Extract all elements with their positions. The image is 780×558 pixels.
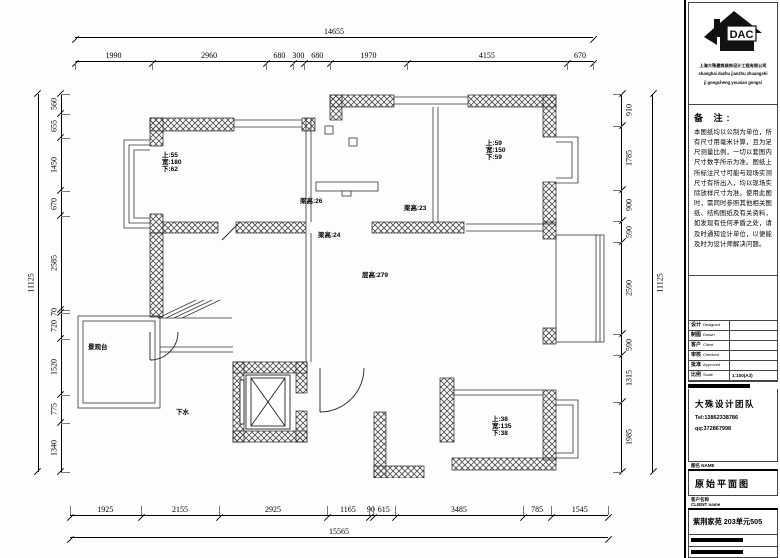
- dim-value: 655: [50, 120, 59, 132]
- dim-value: 14655: [324, 27, 344, 36]
- dim-segment: 655: [47, 114, 62, 138]
- dim-value: 2590: [625, 280, 634, 296]
- dim-segment: 1990: [75, 46, 152, 62]
- floor-plan-drawing: [62, 90, 618, 478]
- title-block-panel: DAC 上海大殊建筑装饰设计工程有限公司 shanghai dazhu jian…: [684, 0, 780, 558]
- company-name-en: shanghai dazhu jianzhu zhuangshi: [689, 71, 777, 76]
- dim-value: 775: [50, 403, 59, 415]
- dim-segment: 2590: [621, 242, 636, 334]
- team-box: 大殊设计团队 Tel:13862338786 qq:372867998: [688, 389, 778, 462]
- dim-segment: 670: [47, 191, 62, 215]
- dim-segment: 1985: [621, 402, 636, 472]
- dim-segment: 1315: [621, 355, 636, 402]
- footer-row: [688, 547, 778, 558]
- row-label-en: Drawn: [703, 332, 715, 337]
- dim-value: 2155: [172, 505, 188, 514]
- dac-house-logo: DAC: [702, 9, 764, 55]
- info-table-row: 批准 Approved: [689, 361, 777, 371]
- row-label-cn: 制图: [691, 331, 701, 338]
- shaft-boxes: [316, 126, 378, 196]
- footer-bar: [691, 538, 743, 542]
- dim-segment: 1925: [70, 500, 141, 516]
- dim-value: 1985: [625, 429, 634, 445]
- floor-plan-sheet: 14655 1990296068030068019704155670 19252…: [0, 0, 780, 558]
- dim-segment: 1165: [327, 500, 370, 516]
- dim-segment: 11125: [24, 94, 39, 472]
- dim-value: 720: [50, 320, 59, 332]
- dim-value: 1785: [625, 150, 634, 166]
- dim-value: 4155: [479, 51, 495, 60]
- dim-value: 670: [574, 51, 586, 60]
- dim-segment: 3485: [395, 500, 523, 516]
- dim-segment: 775: [47, 395, 62, 423]
- dim-segment: 670: [567, 46, 593, 62]
- project-name: 紫荆家苑 203单元505: [688, 510, 778, 535]
- dim-segment: 910: [621, 94, 636, 126]
- dim-value: 785: [531, 505, 543, 514]
- team-qq: qq:372867998: [695, 426, 777, 432]
- dim-value: 670: [50, 198, 59, 210]
- dim-segment: 785: [523, 500, 552, 516]
- dim-value: 680: [311, 51, 323, 60]
- dimension-total-left: 11125: [24, 94, 39, 472]
- divider-bar: [688, 384, 750, 389]
- notes-title: 备 注:: [694, 111, 772, 124]
- dim-value: 590: [625, 339, 634, 351]
- row-label-cn: 设计: [691, 321, 701, 328]
- dim-value: 11125: [27, 273, 36, 292]
- info-table-row: 设计 Designed: [689, 321, 777, 331]
- row-label-cn: 审核: [691, 351, 701, 358]
- logo-text: DAC: [730, 29, 754, 41]
- hatched-walls: [150, 95, 556, 478]
- dim-segment: 560: [47, 94, 62, 114]
- info-table: 设计 Designed 制图 Drawn 客户 Client: [688, 321, 778, 382]
- dimension-chain-bottom: 19252155292511659061534857851545: [70, 500, 608, 516]
- dim-segment: 1785: [621, 126, 636, 189]
- dim-segment: 14655: [75, 22, 593, 38]
- stairs-lines: [158, 300, 232, 318]
- dim-segment: 2155: [141, 500, 220, 516]
- dim-value: 11125: [656, 273, 665, 292]
- footer-row: [688, 535, 778, 546]
- dim-segment: 1545: [551, 500, 608, 516]
- company-name-cn: 上海大殊建筑装饰设计工程有限公司: [689, 63, 777, 68]
- dim-segment: 4155: [407, 46, 568, 62]
- row-label-en: Scale: [703, 372, 713, 377]
- row-label-en: Approved: [703, 362, 720, 367]
- dim-value: 2960: [201, 51, 217, 60]
- dim-segment: 1450: [47, 138, 62, 191]
- drawing-title: 原始平面图: [688, 471, 778, 497]
- dim-value: 1165: [340, 505, 356, 514]
- dim-value: 1990: [105, 51, 121, 60]
- dimension-chain-left: 560655145067025857072015207751340: [47, 94, 62, 472]
- dim-value: 300: [292, 51, 304, 60]
- logo-box: DAC 上海大殊建筑装饰设计工程有限公司 shanghai dazhu jian…: [688, 2, 778, 105]
- dim-value: 2585: [50, 255, 59, 271]
- dim-segment: 900: [621, 190, 636, 222]
- signature-box: [688, 276, 778, 321]
- dim-value: 1340: [50, 440, 59, 456]
- footer-bar: [691, 550, 743, 554]
- dim-segment: 1520: [47, 339, 62, 395]
- dimension-total-top: 14655: [75, 22, 593, 38]
- team-tel: Tel:13862338786: [695, 415, 777, 421]
- dim-value: 1925: [97, 505, 113, 514]
- dim-value: 1970: [360, 51, 376, 60]
- dimension-total-right: 11125: [652, 94, 667, 472]
- client-name-label: 客户名称 CLIENT name: [688, 496, 778, 510]
- dim-value: 1315: [625, 370, 634, 386]
- dim-segment: 11125: [652, 94, 667, 472]
- dim-value: 1520: [50, 359, 59, 375]
- row-label-en: Checked: [703, 352, 719, 357]
- row-label-cn: 客户: [691, 341, 701, 348]
- drawing-name-label: 图名 NAME: [688, 462, 778, 471]
- row-label-cn: 批准: [691, 361, 701, 368]
- dim-segment: 2585: [47, 216, 62, 310]
- dim-segment: 720: [47, 313, 62, 339]
- row-label-en: Client: [703, 342, 713, 347]
- dim-segment: 615: [373, 500, 396, 516]
- dim-segment: 1970: [330, 46, 406, 62]
- dim-value: 1450: [50, 157, 59, 173]
- notes-box: 备 注: 本图纸均以公制为单位，所有尺寸用毫米计算，且为足尺测量比例，一切以套图…: [688, 105, 778, 277]
- dim-segment: 2960: [152, 46, 266, 62]
- dim-segment: 15565: [70, 522, 608, 538]
- row-label-cn: 比例: [691, 371, 701, 378]
- dim-segment: 680: [266, 46, 292, 62]
- dim-segment: 300: [293, 46, 305, 62]
- notes-body: 本图纸均以公制为单位，所有尺寸用毫米计算，且为足尺测量比例，一切以套图内尺寸数字…: [694, 128, 772, 250]
- dim-value: 3485: [451, 505, 467, 514]
- info-table-row: 审核 Checked: [689, 351, 777, 361]
- dim-value: 615: [378, 505, 390, 514]
- dimension-chain-right: 9101785900590259059013151985: [621, 94, 636, 472]
- info-table-row: 制图 Drawn: [689, 331, 777, 341]
- elevator: [240, 375, 290, 429]
- row-value: 1:100(A3): [730, 373, 753, 378]
- row-label-en: Designed: [703, 322, 720, 327]
- team-name: 大殊设计团队: [695, 398, 777, 410]
- dim-segment: 2925: [219, 500, 326, 516]
- dim-segment: 680: [304, 46, 330, 62]
- dim-value: 900: [625, 199, 634, 211]
- dim-value: 590: [625, 226, 634, 238]
- dim-value: 680: [273, 51, 285, 60]
- dim-segment: 1340: [47, 423, 62, 472]
- dim-value: 1545: [572, 505, 588, 514]
- company-name-en: ji gongcheng youxian gongsi: [689, 80, 777, 85]
- dimension-chain-top: 1990296068030068019704155670: [75, 46, 593, 62]
- dim-value: 2925: [265, 505, 281, 514]
- dim-value: 15565: [329, 527, 349, 536]
- dim-value: 560: [50, 98, 59, 110]
- info-table-row: 比例 Scale 1:100(A3): [689, 371, 777, 381]
- dim-value: 910: [625, 104, 634, 116]
- info-table-row: 客户 Client: [689, 341, 777, 351]
- dimension-total-bottom: 15565: [70, 522, 608, 538]
